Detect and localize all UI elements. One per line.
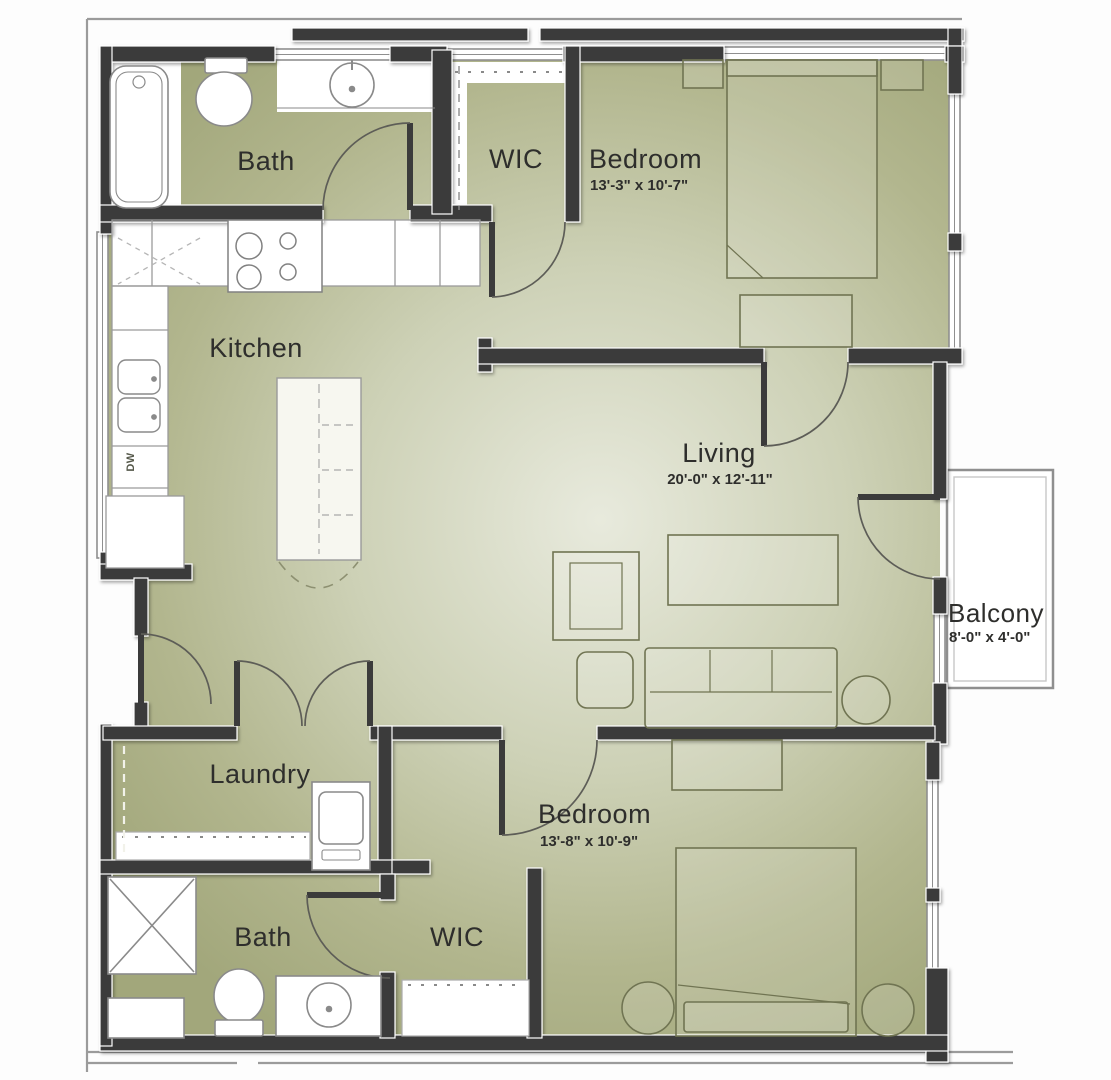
kitchen-island (277, 378, 361, 588)
nightstand-1b (881, 60, 923, 90)
label-balcony: Balcony (948, 598, 1044, 628)
label-bedroom2-dims: 13'-8" x 10'-9" (540, 833, 638, 850)
wic2-closet (402, 980, 529, 1036)
label-living-dims: 20'-0" x 12'-11" (667, 471, 773, 488)
bathtub (110, 66, 168, 208)
dresser-2 (672, 740, 782, 790)
bed-1-headboard (727, 60, 877, 76)
armchair (553, 552, 639, 640)
label-kitchen: Kitchen (209, 333, 303, 363)
bed-1 (727, 60, 877, 278)
wic2-shelf (402, 980, 529, 1036)
label-wic2: WIC (430, 922, 484, 952)
nightstand-2a (622, 982, 674, 1034)
label-bedroom1-dims: 13'-3" x 10'-7" (590, 177, 688, 194)
label-bath2: Bath (234, 922, 292, 952)
toilet-bowl-1 (196, 72, 252, 126)
nightstand-2b (862, 984, 914, 1036)
label-bath1: Bath (237, 146, 295, 176)
toilet-bowl-2 (214, 969, 264, 1023)
label-bedroom2: Bedroom (538, 799, 651, 829)
linen-closet (108, 998, 184, 1038)
label-balcony-dims: 8'-0" x 4'-0" (949, 629, 1030, 646)
shower (108, 877, 196, 974)
label-dishwasher: DW (125, 452, 137, 471)
nightstand-1a (683, 60, 723, 88)
bed-2-pillows (684, 1002, 848, 1032)
floor-plan-page: Bath WIC Bedroom 13'-3" x 10'-7" Kitchen… (0, 0, 1111, 1080)
balcony-slab (947, 470, 1053, 688)
label-living: Living (682, 438, 756, 468)
toilet-tank-1 (205, 58, 247, 73)
label-wic1: WIC (489, 144, 543, 174)
stove (228, 220, 322, 292)
round-table (842, 676, 890, 724)
dresser-1 (740, 295, 852, 347)
toilet-tank-2 (215, 1020, 263, 1036)
label-bedroom1: Bedroom (589, 144, 702, 174)
coffee-table (668, 535, 838, 605)
label-laundry: Laundry (209, 759, 310, 789)
side-table (577, 652, 633, 708)
floor-plan-canvas: Bath WIC Bedroom 13'-3" x 10'-7" Kitchen… (0, 0, 1111, 1080)
sofa (645, 648, 837, 728)
washer-dryer (312, 782, 370, 870)
